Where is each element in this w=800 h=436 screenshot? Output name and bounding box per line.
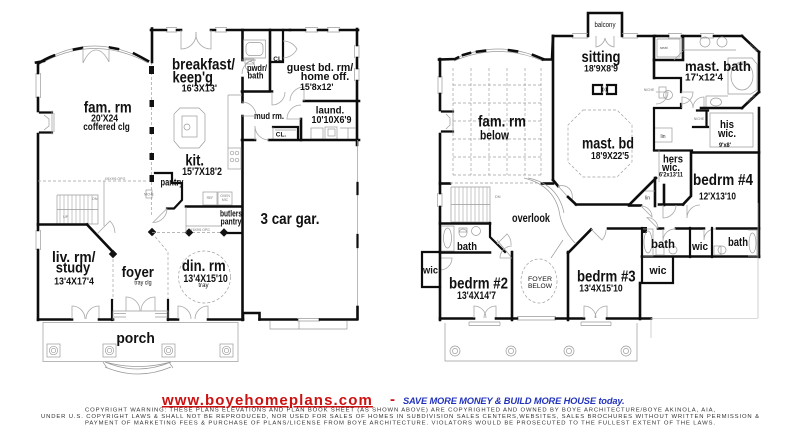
svg-text:seat: seat: [660, 45, 668, 50]
svg-text:bath: bath: [651, 239, 675, 251]
svg-text:below: below: [480, 129, 509, 143]
svg-text:UNDER U.S. COPYRIGHT LAWS & SH: UNDER U.S. COPYRIGHT LAWS & SHALL NOT BE…: [41, 414, 759, 420]
svg-text:SAVE MORE MONEY & BUILD MORE H: SAVE MORE MONEY & BUILD MORE HOUSE today…: [403, 396, 624, 406]
svg-text:bath: bath: [728, 237, 748, 249]
svg-text:NICHE: NICHE: [644, 88, 655, 92]
svg-text:wic: wic: [649, 265, 667, 277]
svg-text:lin: lin: [645, 196, 650, 202]
svg-text:COPYRIGHT WARNING: THESE PLANS: COPYRIGHT WARNING: THESE PLANS ELEVATION…: [85, 408, 715, 414]
svg-text:wic: wic: [691, 241, 708, 253]
svg-text:13'4X15'10: 13'4X15'10: [579, 283, 623, 295]
svg-text:6'2x13'11: 6'2x13'11: [659, 173, 684, 179]
svg-text:18'9X22'5: 18'9X22'5: [591, 150, 629, 162]
svg-text:balcony: balcony: [595, 22, 616, 29]
svg-text:9'x8': 9'x8': [719, 143, 732, 149]
svg-text:PAYMENT OF MARKETING FEES & PU: PAYMENT OF MARKETING FEES & PURCHASE OF …: [85, 420, 715, 426]
svg-text:mud rm.: mud rm.: [254, 111, 284, 122]
svg-text:lin: lin: [660, 134, 665, 140]
svg-text:12'X13'10: 12'X13'10: [699, 191, 736, 203]
svg-text:13'4X17'4: 13'4X17'4: [54, 276, 94, 288]
svg-text:4'6X9'6 OPG: 4'6X9'6 OPG: [190, 228, 210, 232]
svg-text:DN: DN: [495, 195, 501, 199]
svg-text:BELOW: BELOW: [528, 283, 553, 290]
svg-text:10'10X6'9: 10'10X6'9: [312, 115, 352, 126]
svg-text:NICHE: NICHE: [144, 193, 154, 197]
svg-text:wic.: wic.: [717, 128, 736, 140]
svg-text:tray clg: tray clg: [134, 280, 152, 287]
svg-text:NICHE: NICHE: [694, 117, 705, 121]
svg-text:CL.: CL.: [276, 132, 287, 139]
svg-text:15'7X18'2: 15'7X18'2: [182, 166, 222, 178]
svg-text:15'8x12': 15'8x12': [300, 82, 334, 93]
svg-text:tray: tray: [198, 283, 208, 289]
svg-text:overlook: overlook: [512, 211, 550, 225]
svg-text:MIC: MIC: [222, 198, 229, 202]
svg-text:13'4X14'7: 13'4X14'7: [457, 290, 496, 302]
svg-text:study: study: [56, 260, 91, 277]
svg-text:www.boyehomeplans.com: www.boyehomeplans.com: [161, 392, 373, 409]
svg-text:bath: bath: [248, 71, 264, 82]
svg-text:pantry: pantry: [221, 217, 243, 228]
svg-text:REF: REF: [207, 196, 214, 200]
svg-text:bedrm #4: bedrm #4: [693, 172, 753, 189]
svg-text:coffered clg: coffered clg: [83, 122, 130, 133]
svg-text:DN: DN: [92, 197, 98, 201]
svg-text:pantry: pantry: [161, 177, 184, 189]
svg-text:FOYER: FOYER: [528, 276, 552, 283]
svg-text:16'3X13': 16'3X13': [182, 83, 217, 94]
svg-text:3 car gar.: 3 car gar.: [261, 211, 320, 228]
svg-text:porch: porch: [116, 331, 155, 347]
svg-text:18'9X8'9: 18'9X8'9: [584, 64, 618, 75]
svg-text:UP: UP: [63, 215, 69, 219]
svg-text:-: -: [390, 391, 395, 408]
svg-text:wic: wic: [422, 266, 438, 277]
svg-text:4'6X9'6 OPG: 4'6X9'6 OPG: [105, 177, 126, 181]
svg-text:17'x12'4: 17'x12'4: [685, 73, 723, 84]
